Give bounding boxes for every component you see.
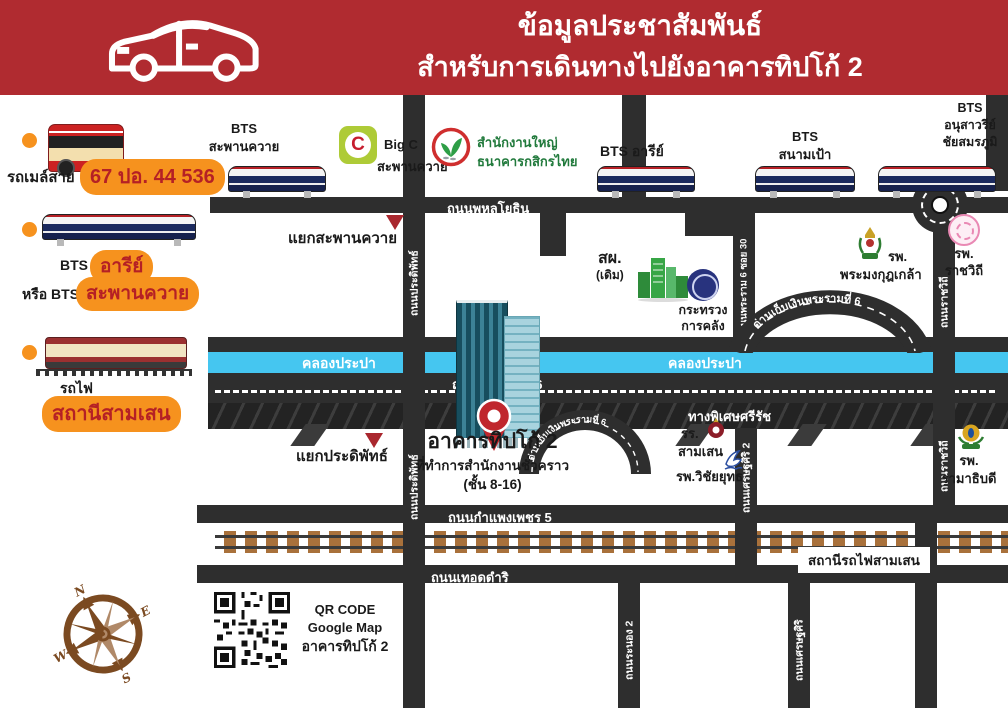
sirat-expressway-label: ทางพิเศษศรีรัช xyxy=(688,406,771,427)
toll-gate-arch-large: ด่านเก็บเงินพระรามที่ 6 xyxy=(725,275,935,353)
bts-saphankhwai-line2: สะพานควาย xyxy=(196,138,292,156)
rajavithi-label: รพ. ราชวิถี xyxy=(936,245,992,279)
bts-victory-label: BTS อนุสาวรีย์ ชัยสมรภูมิ xyxy=(934,100,1006,151)
bullet-bts xyxy=(22,222,37,237)
samsen-school-icon xyxy=(706,418,726,440)
samsen-school-name: สามเสน xyxy=(678,441,723,462)
road-rama6 xyxy=(208,373,1008,403)
bus-route-badge: 67 ปอ. 44 536 xyxy=(80,159,225,195)
road-setthasiri-label: ถนนเศรษฐศิริ xyxy=(788,598,810,703)
road-thoetdamri-label: ถนนเทอดดำริ xyxy=(431,567,509,588)
compass-e: E xyxy=(137,603,153,621)
mof-line1: กระทรวง xyxy=(672,302,734,318)
qr-line2: Google Map xyxy=(292,619,398,637)
junction-saphankhwai-label: แยกสะพานควาย xyxy=(288,226,397,250)
tipco-text-block: อาคารทิปโก้ 2 ที่ทำการสำนักงานชั่วคราว (… xyxy=(400,428,585,495)
compass-n: N xyxy=(71,581,89,599)
ramathibodi-icon xyxy=(956,423,986,451)
vichaiyut-label: รพ.วิชัยยุทธ xyxy=(676,466,743,487)
qr-code xyxy=(214,592,290,668)
page-title: ข้อมูลประชาสัมพันธ์ xyxy=(290,6,990,46)
qr-line1: QR CODE xyxy=(292,601,398,619)
bigc-icon: C xyxy=(339,126,377,164)
ramathibodi-line1: รพ. xyxy=(930,452,1008,470)
tipco-desc: ที่ทำการสำนักงานชั่วคราว xyxy=(400,456,585,475)
canal-label-west: คลองประปา xyxy=(302,353,376,375)
qr-line3: อาคารทิปโก้ 2 xyxy=(292,637,398,655)
bts-label-1: BTS xyxy=(60,257,88,273)
mof-label: กระทรวง การคลัง xyxy=(672,302,734,334)
header-titles: ข้อมูลประชาสัมพันธ์ สำหรับการเดินทางไปยั… xyxy=(290,6,990,88)
railway-track-icon xyxy=(36,369,192,376)
railway-carriage-icon xyxy=(45,337,187,369)
bts-victory-line1: BTS xyxy=(934,100,1006,117)
mof-line2: การคลัง xyxy=(672,318,734,334)
phramongkut-name: พระมงกุฎเกล้า xyxy=(840,264,922,285)
tipco-name: อาคารทิปโก้ 2 xyxy=(400,428,585,456)
junction-pradiphat-marker xyxy=(365,433,383,448)
bts-sanampao-line1: BTS xyxy=(762,128,848,146)
tipco-floors: (ชั้น 8-16) xyxy=(400,475,585,495)
road-kamphaengphet5-label: ถนนกำแพงเพชร 5 xyxy=(448,507,552,528)
sorphor-buildings-icon xyxy=(636,250,690,302)
bts-sanampao-line2: สนามเป้า xyxy=(762,146,848,164)
bts-train-victory xyxy=(878,166,996,192)
page-subtitle: สำหรับการเดินทางไปยังอาคารทิปโก้ 2 xyxy=(290,46,990,88)
bts-train-icon xyxy=(42,214,196,240)
samsen-station-box: สถานีรถไฟสามเสน xyxy=(798,547,930,573)
compass-s: S xyxy=(119,670,134,687)
ramathibodi-label: รพ. รามาธิบดี xyxy=(930,452,1008,488)
mof-icon xyxy=(687,269,719,301)
road-centerline xyxy=(215,390,995,393)
bts-train-sanampao xyxy=(755,166,855,192)
road-ranong2-label: ถนนระนอง 2 xyxy=(618,598,640,703)
bts-train-ari xyxy=(597,166,695,192)
kbank-line1: สำนักงานใหญ่ xyxy=(477,132,558,153)
bts-victory-line2: อนุสาวรีย์ xyxy=(934,117,1006,134)
qr-caption: QR CODE Google Map อาคารทิปโก้ 2 xyxy=(292,601,398,655)
kbank-icon xyxy=(431,127,471,167)
kbank-line2: ธนาคารกสิกรไทย xyxy=(477,151,577,172)
train-station-badge: สถานีสามเสน xyxy=(42,396,181,432)
bts-train-saphankhwai xyxy=(228,166,326,192)
road-stub-sorphor xyxy=(540,212,566,256)
bts-label-2: หรือ BTS xyxy=(22,284,79,306)
car-icon xyxy=(95,4,270,90)
bts-sanampao-label: BTS สนามเป้า xyxy=(762,128,848,164)
canal-label-east: คลองประปา xyxy=(668,353,742,375)
rajavithi-line2: ราชวิถี xyxy=(936,262,992,279)
phramongkut-icon xyxy=(857,226,883,260)
road-pradiphat-label: ถนนประดิพัทธ์ xyxy=(403,228,425,338)
compass-rose-icon: N E S W xyxy=(48,578,158,690)
bts-victory-line3: ชัยสมรภูมิ xyxy=(934,134,1006,151)
rajavithi-icon xyxy=(948,214,980,246)
sorphor-old-label: (เดิม) xyxy=(596,266,624,285)
bigc-glyph: C xyxy=(351,134,365,155)
road-kamphaengphet5 xyxy=(197,505,1008,523)
road-phahonyothin xyxy=(210,197,1008,213)
bts-saphankhwai-label: BTS สะพานควาย xyxy=(196,120,292,156)
road-phahonyothin-label: ถนนพหลโยธิน xyxy=(447,198,529,219)
bts-saphankhwai-badge: สะพานควาย xyxy=(76,277,199,311)
bigc-name: Big C xyxy=(384,137,418,152)
ramathibodi-line2: รามาธิบดี xyxy=(930,470,1008,488)
bus-label: รถเมล์สาย xyxy=(7,165,75,189)
infographic-map: ข้อมูลประชาสัมพันธ์ สำหรับการเดินทางไปยั… xyxy=(0,0,1008,708)
junction-saphankhwai-marker xyxy=(386,215,404,230)
bullet-bus xyxy=(22,133,37,148)
rajavithi-line1: รพ. xyxy=(936,245,992,262)
bts-ari-label: BTS อารีย์ xyxy=(600,141,664,163)
road-pradiphat xyxy=(403,95,425,708)
bts-saphankhwai-line1: BTS xyxy=(196,120,292,138)
bullet-train xyxy=(22,345,37,360)
